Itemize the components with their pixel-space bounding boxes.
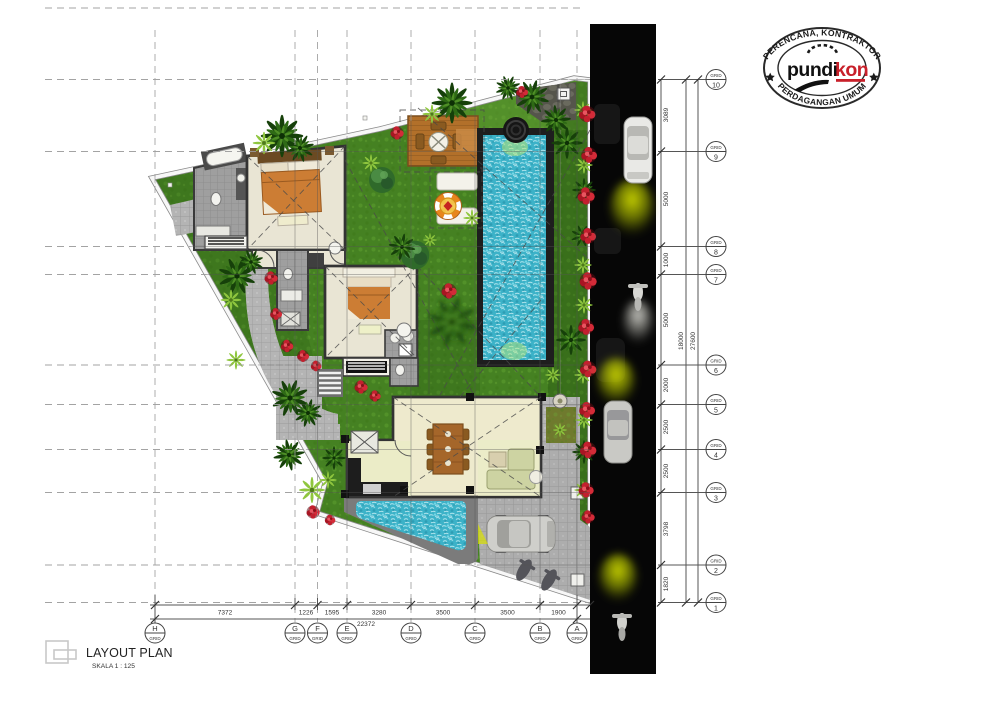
svg-text:GRID: GRID [405, 636, 417, 641]
svg-text:5000: 5000 [663, 312, 670, 327]
svg-text:LAYOUT PLAN: LAYOUT PLAN [86, 646, 173, 660]
svg-text:10: 10 [712, 83, 720, 90]
svg-text:7372: 7372 [218, 610, 233, 617]
svg-text:1226: 1226 [299, 610, 314, 617]
svg-text:2: 2 [714, 568, 718, 575]
svg-text:GRID: GRID [710, 145, 722, 150]
svg-text:GRID: GRID [469, 636, 481, 641]
svg-text:GRID: GRID [710, 486, 722, 491]
svg-text:SKALA 1 : 125: SKALA 1 : 125 [92, 663, 135, 670]
svg-text:6: 6 [714, 368, 718, 375]
svg-text:1: 1 [714, 606, 718, 613]
svg-text:G: G [292, 624, 298, 633]
svg-text:3: 3 [714, 496, 718, 503]
svg-text:GRID: GRID [571, 636, 583, 641]
svg-text:E: E [344, 624, 349, 633]
svg-text:1000: 1000 [663, 252, 670, 267]
svg-text:F: F [315, 624, 320, 633]
svg-text:H: H [152, 624, 157, 633]
svg-text:A: A [574, 624, 579, 633]
svg-text:kon: kon [835, 59, 868, 81]
svg-text:2500: 2500 [663, 419, 670, 434]
svg-text:GRID: GRID [710, 359, 722, 364]
svg-text:3798: 3798 [663, 521, 670, 536]
svg-text:GRID: GRID [710, 240, 722, 245]
svg-text:GRID: GRID [341, 636, 353, 641]
svg-text:3500: 3500 [500, 610, 515, 617]
svg-text:2500: 2500 [663, 463, 670, 478]
svg-text:7: 7 [714, 278, 718, 285]
svg-text:GRID: GRID [289, 636, 301, 641]
svg-text:27600: 27600 [690, 332, 697, 350]
svg-text:18000: 18000 [678, 332, 685, 350]
svg-text:D: D [408, 624, 414, 633]
svg-text:2000: 2000 [663, 377, 670, 392]
svg-text:GRID: GRID [710, 559, 722, 564]
svg-text:5: 5 [714, 408, 718, 415]
svg-text:3089: 3089 [663, 107, 670, 122]
svg-text:8: 8 [714, 250, 718, 257]
svg-text:B: B [537, 624, 542, 633]
svg-text:9: 9 [714, 155, 718, 162]
svg-text:GRID: GRID [710, 443, 722, 448]
svg-text:22372: 22372 [357, 621, 375, 628]
svg-text:GRID: GRID [312, 636, 324, 641]
svg-text:3280: 3280 [372, 610, 387, 617]
svg-text:1900: 1900 [551, 610, 566, 617]
svg-text:pundi: pundi [787, 59, 838, 81]
svg-text:5000: 5000 [663, 191, 670, 206]
svg-text:GRID: GRID [710, 596, 722, 601]
svg-text:GRID: GRID [710, 398, 722, 403]
svg-text:1595: 1595 [325, 610, 340, 617]
svg-text:GRID: GRID [710, 268, 722, 273]
svg-text:1820: 1820 [663, 576, 670, 591]
svg-text:4: 4 [714, 453, 718, 460]
svg-text:GRID: GRID [534, 636, 546, 641]
svg-text:GRID: GRID [149, 636, 161, 641]
svg-text:GRID: GRID [710, 73, 722, 78]
svg-text:C: C [472, 624, 478, 633]
svg-text:3500: 3500 [436, 610, 451, 617]
